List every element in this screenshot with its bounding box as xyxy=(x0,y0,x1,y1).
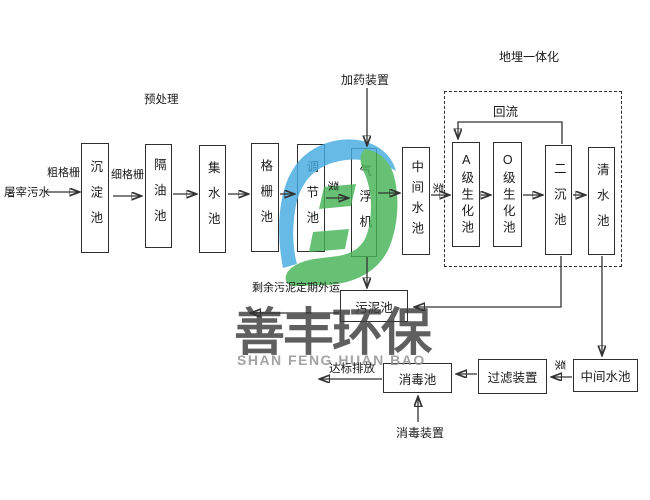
label-dosing-device: 加药装置 xyxy=(341,71,389,88)
label-pump-3: 泵 xyxy=(553,360,569,371)
label-fine-screen: 细格栅 xyxy=(111,166,144,182)
label-coarse-screen: 粗格栅 xyxy=(47,164,80,180)
label-disinfection-device: 消毒装置 xyxy=(396,424,444,441)
label-reflux: 回流 xyxy=(493,101,518,120)
label-buried-integration: 地埋一体化 xyxy=(499,48,559,65)
process-flow-diagram: 沉淀池 隔油池 集水池 格栅池 调节池 气浮机 中间水池 A级生化池 O级生化池… xyxy=(0,0,650,500)
arrow-secondary-to-sludge xyxy=(415,256,561,307)
flow-arrows-layer xyxy=(0,0,650,500)
label-influent: 屠宰污水 xyxy=(4,184,50,200)
arrow-reflux xyxy=(458,122,562,144)
label-pump-2: 泵 xyxy=(431,183,447,194)
label-pretreatment: 预处理 xyxy=(144,91,179,107)
label-discharge: 达标排放 xyxy=(329,360,375,376)
label-pump-1: 泵 xyxy=(326,181,342,192)
label-excess-sludge: 剩余污泥定期外运 xyxy=(252,279,340,295)
